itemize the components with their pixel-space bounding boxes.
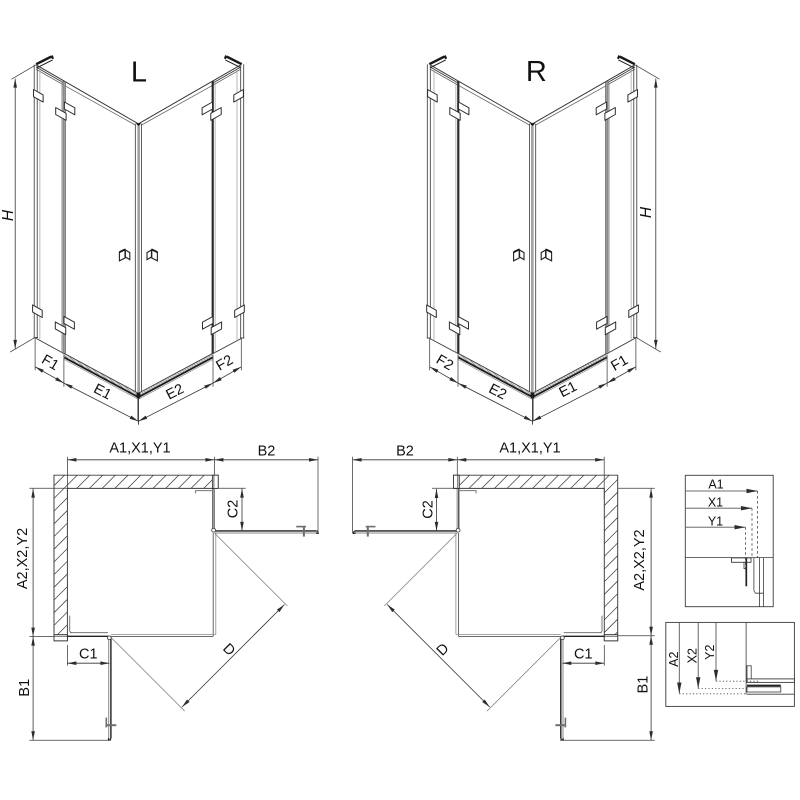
svg-text:C2: C2	[421, 500, 437, 519]
svg-text:L: L	[131, 57, 147, 89]
svg-text:X1: X1	[708, 495, 723, 509]
svg-text:B1: B1	[17, 679, 33, 697]
svg-text:C1: C1	[79, 647, 98, 663]
svg-text:B2: B2	[258, 444, 276, 460]
svg-text:R: R	[526, 56, 547, 88]
svg-text:Y1: Y1	[708, 515, 723, 529]
svg-text:B1: B1	[636, 676, 652, 694]
svg-text:A1,X1,Y1: A1,X1,Y1	[109, 441, 170, 457]
svg-text:A2: A2	[667, 652, 681, 667]
svg-text:C1: C1	[574, 647, 593, 663]
svg-text:X2: X2	[685, 648, 699, 663]
svg-text:A1,X1,Y1: A1,X1,Y1	[499, 441, 560, 457]
svg-text:H: H	[638, 206, 655, 218]
svg-text:H: H	[0, 209, 17, 221]
svg-text:A2,X2,Y2: A2,X2,Y2	[15, 528, 31, 589]
svg-text:A1: A1	[708, 478, 723, 492]
svg-text:Y2: Y2	[703, 645, 717, 660]
svg-text:C2: C2	[226, 500, 242, 519]
svg-text:A2,X2,Y2: A2,X2,Y2	[632, 529, 648, 590]
svg-text:B2: B2	[396, 444, 414, 460]
